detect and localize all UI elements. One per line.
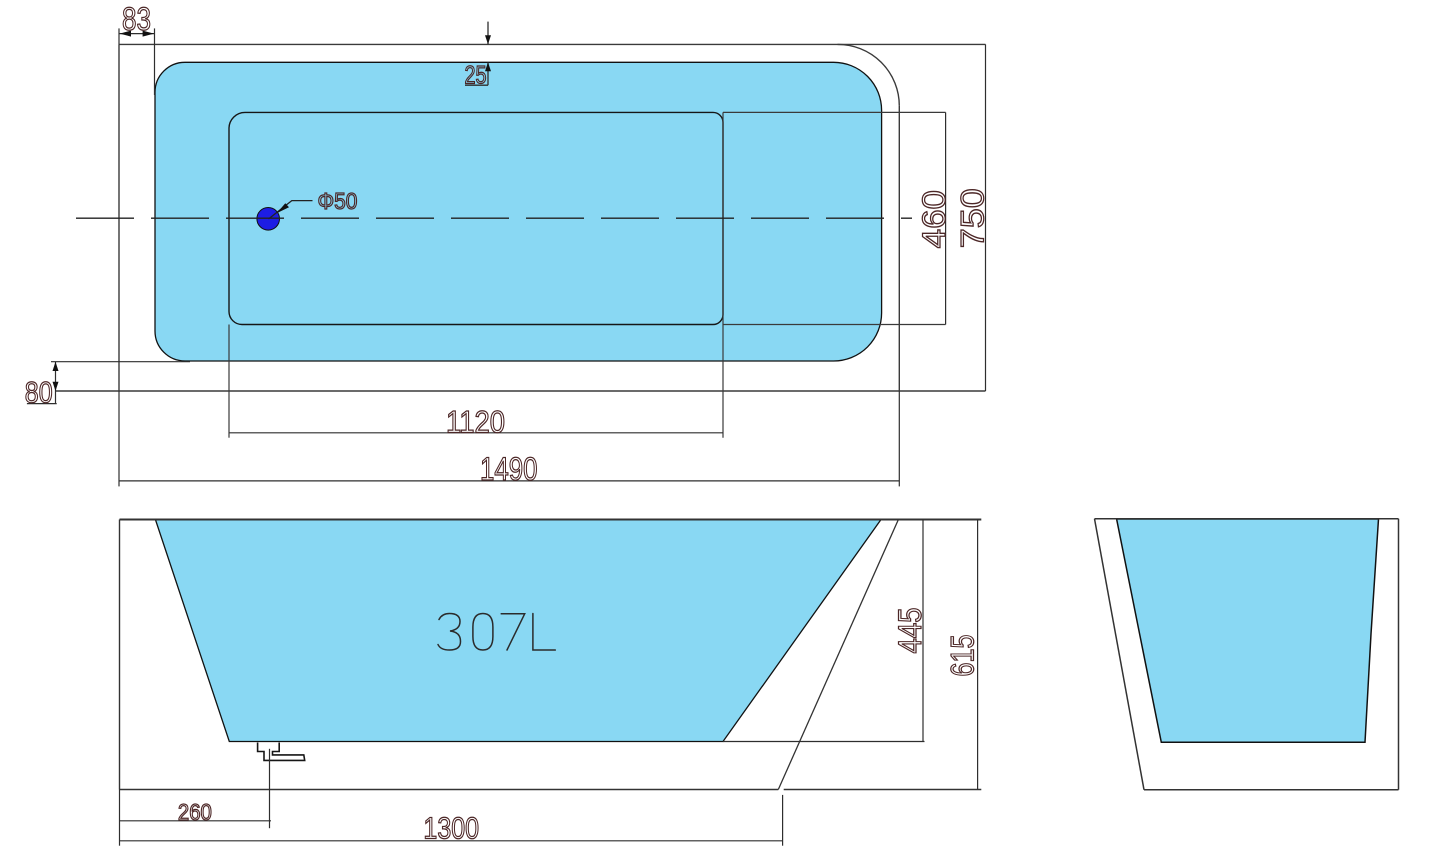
svg-text:750: 750 bbox=[955, 188, 991, 248]
svg-text:615: 615 bbox=[945, 635, 981, 677]
svg-text:1300: 1300 bbox=[423, 812, 479, 846]
svg-text:260: 260 bbox=[178, 799, 212, 825]
svg-text:Φ50: Φ50 bbox=[318, 188, 358, 214]
svg-text:25: 25 bbox=[465, 63, 487, 90]
svg-text:460: 460 bbox=[916, 190, 952, 248]
svg-text:83: 83 bbox=[122, 1, 151, 37]
svg-text:445: 445 bbox=[892, 608, 928, 654]
svg-text:1120: 1120 bbox=[446, 404, 505, 440]
svg-text:1490: 1490 bbox=[480, 451, 538, 487]
svg-text:80: 80 bbox=[25, 376, 53, 409]
